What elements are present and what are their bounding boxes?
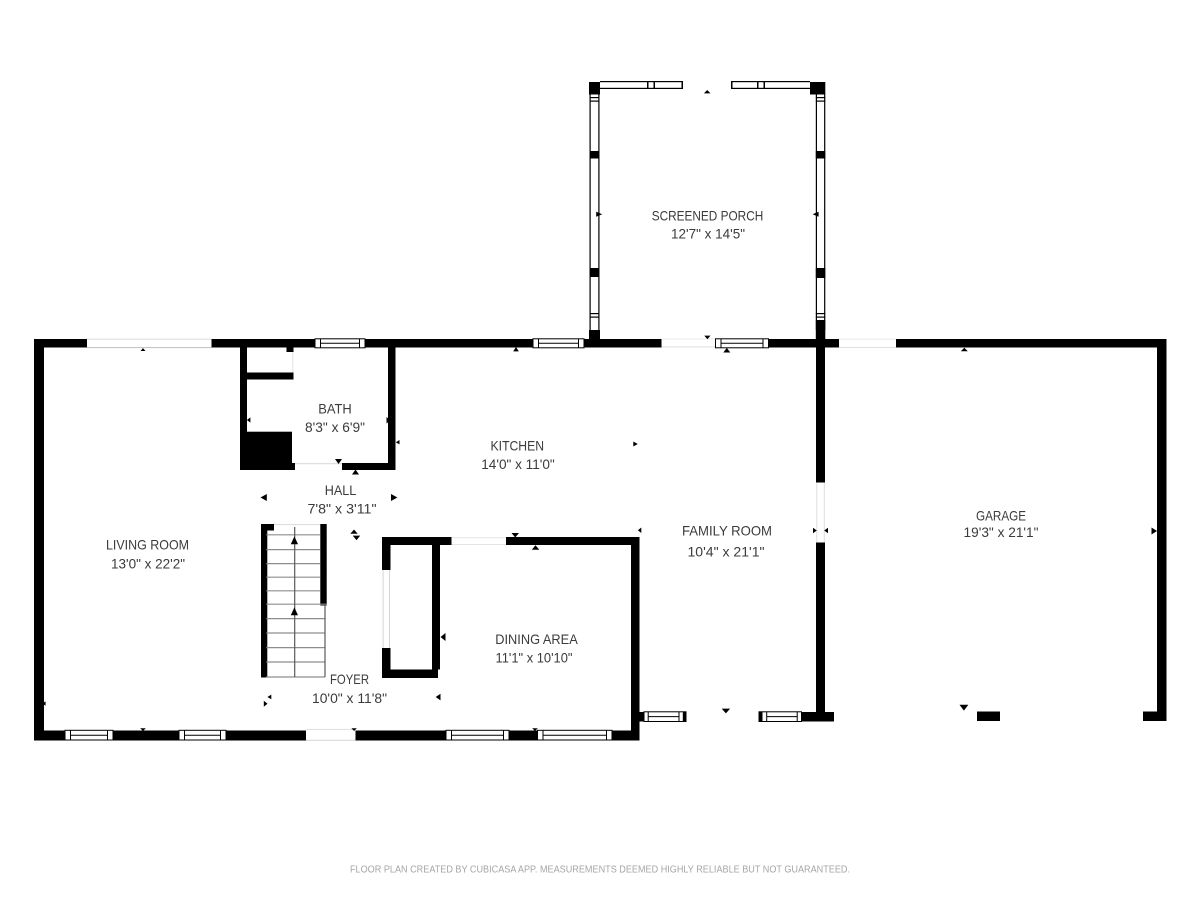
- svg-text:14'0" x 11'0": 14'0" x 11'0": [481, 456, 555, 472]
- svg-text:13'0" x 22'2": 13'0" x 22'2": [111, 556, 185, 572]
- svg-text:11'1" x 10'10": 11'1" x 10'10": [496, 650, 573, 666]
- svg-text:FLOOR PLAN CREATED BY CUBICASA: FLOOR PLAN CREATED BY CUBICASA APP. MEAS…: [350, 865, 850, 876]
- svg-text:DINING AREA: DINING AREA: [495, 631, 578, 647]
- svg-text:BATH: BATH: [318, 401, 352, 417]
- svg-text:FOYER: FOYER: [330, 671, 369, 687]
- svg-text:10'4" x 21'1": 10'4" x 21'1": [688, 544, 765, 560]
- svg-text:LIVING ROOM: LIVING ROOM: [106, 537, 189, 553]
- svg-text:KITCHEN: KITCHEN: [491, 438, 545, 454]
- svg-text:8'3" x 6'9": 8'3" x 6'9": [305, 419, 365, 435]
- svg-text:GARAGE: GARAGE: [976, 508, 1026, 524]
- svg-text:SCREENED PORCH: SCREENED PORCH: [652, 208, 764, 224]
- svg-text:7'8" x 3'11": 7'8" x 3'11": [308, 501, 377, 517]
- svg-text:10'0" x 11'8": 10'0" x 11'8": [312, 690, 387, 706]
- svg-text:FAMILY ROOM: FAMILY ROOM: [682, 523, 772, 539]
- svg-text:HALL: HALL: [325, 482, 357, 498]
- svg-text:12'7" x 14'5": 12'7" x 14'5": [671, 226, 745, 242]
- svg-text:19'3" x 21'1": 19'3" x 21'1": [964, 524, 1039, 540]
